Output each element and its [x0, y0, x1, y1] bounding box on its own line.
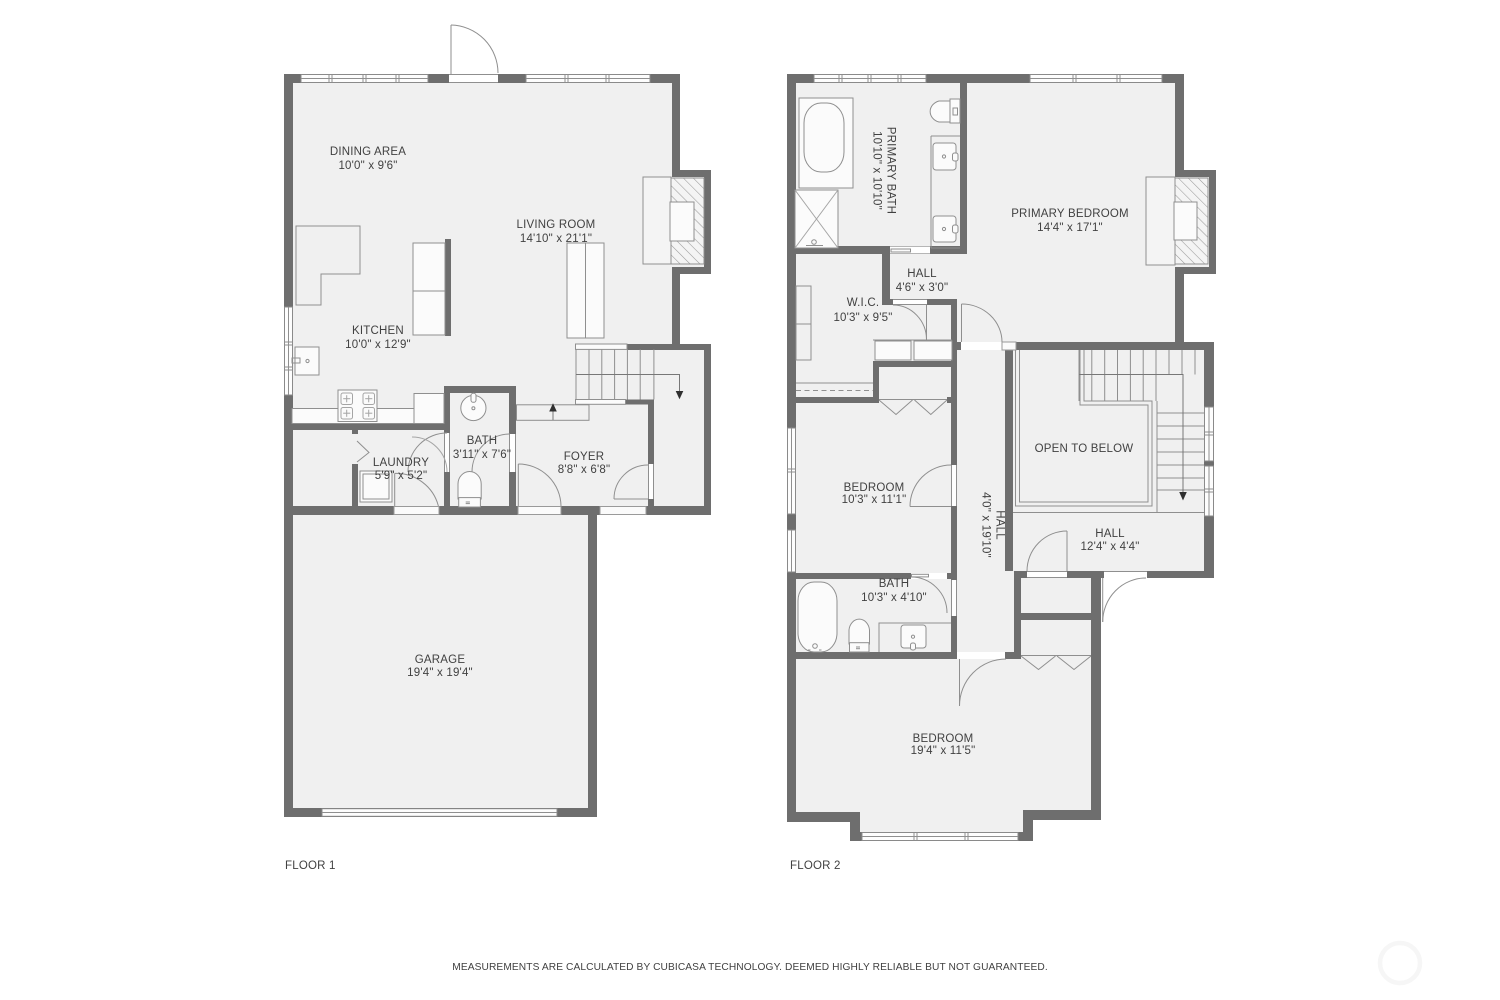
svg-text:BEDROOM: BEDROOM	[913, 733, 974, 745]
svg-text:14'4" x 17'1": 14'4" x 17'1"	[1037, 222, 1103, 234]
svg-text:10'3" x 4'10": 10'3" x 4'10"	[861, 592, 927, 604]
svg-text:W.I.C.: W.I.C.	[847, 297, 880, 309]
svg-text:PRIMARY BEDROOM: PRIMARY BEDROOM	[1011, 208, 1129, 220]
svg-text:OPEN TO BELOW: OPEN TO BELOW	[1035, 443, 1134, 455]
svg-text:HALL: HALL	[994, 510, 1006, 540]
svg-text:19'4" x 19'4": 19'4" x 19'4"	[407, 667, 473, 679]
svg-text:4'6" x 3'0": 4'6" x 3'0"	[896, 282, 948, 294]
svg-text:FLOOR 1: FLOOR 1	[285, 860, 336, 872]
svg-text:4'0" x 19'10": 4'0" x 19'10"	[980, 492, 992, 558]
svg-text:LIVING ROOM: LIVING ROOM	[517, 219, 596, 231]
svg-text:5'9" x 5'2": 5'9" x 5'2"	[375, 470, 427, 482]
svg-text:FOYER: FOYER	[564, 451, 605, 463]
svg-text:14'10" x 21'1": 14'10" x 21'1"	[520, 233, 592, 245]
svg-text:HALL: HALL	[907, 268, 937, 280]
svg-text:DINING AREA: DINING AREA	[330, 146, 406, 158]
svg-text:8'8" x 6'8": 8'8" x 6'8"	[558, 464, 610, 476]
svg-text:KITCHEN: KITCHEN	[352, 325, 404, 337]
svg-text:12'4" x 4'4": 12'4" x 4'4"	[1080, 541, 1139, 553]
svg-text:GARAGE: GARAGE	[415, 654, 466, 666]
svg-text:3'11" x 7'6": 3'11" x 7'6"	[453, 449, 511, 461]
svg-text:BEDROOM: BEDROOM	[844, 482, 905, 494]
svg-text:BATH: BATH	[467, 435, 498, 447]
svg-text:BATH: BATH	[879, 578, 910, 590]
svg-text:MEASUREMENTS ARE CALCULATED BY: MEASUREMENTS ARE CALCULATED BY CUBICASA …	[452, 962, 1048, 973]
svg-text:10'3" x 11'1": 10'3" x 11'1"	[842, 494, 907, 506]
svg-text:10'0" x 12'9": 10'0" x 12'9"	[345, 339, 411, 351]
svg-text:10'3" x 9'5": 10'3" x 9'5"	[833, 312, 892, 324]
svg-text:10'10" x 10'10": 10'10" x 10'10"	[871, 131, 883, 210]
svg-text:LAUNDRY: LAUNDRY	[373, 457, 429, 469]
svg-text:10'0" x 9'6": 10'0" x 9'6"	[338, 160, 397, 172]
svg-text:HALL: HALL	[1095, 528, 1125, 540]
svg-text:19'4" x 11'5": 19'4" x 11'5"	[911, 745, 976, 757]
svg-text:FLOOR 2: FLOOR 2	[790, 860, 841, 872]
svg-text:PRIMARY BATH: PRIMARY BATH	[885, 127, 897, 214]
